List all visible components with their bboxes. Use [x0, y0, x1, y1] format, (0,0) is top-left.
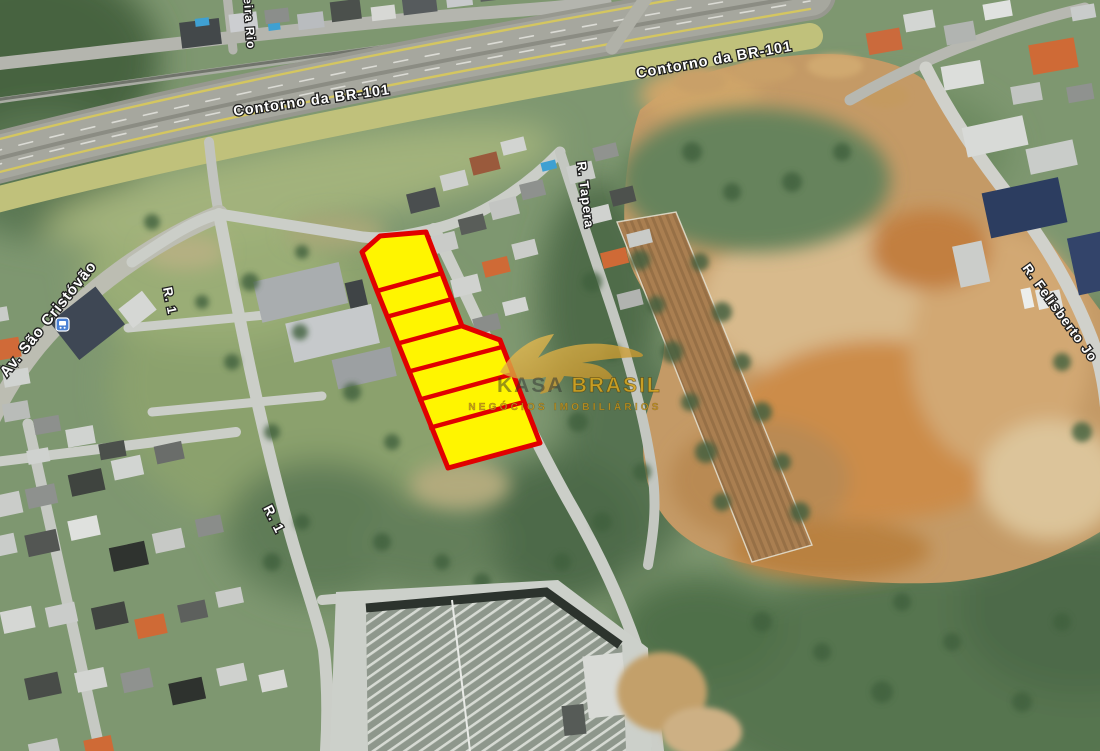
satellite-map[interactable]: KASA BRASIL NEGÓCIOS IMOBILIÁRIOS Contor… [0, 0, 1100, 751]
svg-text:KASA BRASIL: KASA BRASIL [497, 374, 662, 397]
map-canvas[interactable]: KASA BRASIL NEGÓCIOS IMOBILIÁRIOS Contor… [0, 0, 1100, 751]
bus-stop-icon[interactable] [56, 318, 69, 331]
watermark-text-suffix: BRASIL [572, 374, 662, 397]
watermark-tagline: NEGÓCIOS IMOBILIÁRIOS [468, 400, 661, 413]
watermark-text-prefix: KASA [497, 374, 572, 397]
